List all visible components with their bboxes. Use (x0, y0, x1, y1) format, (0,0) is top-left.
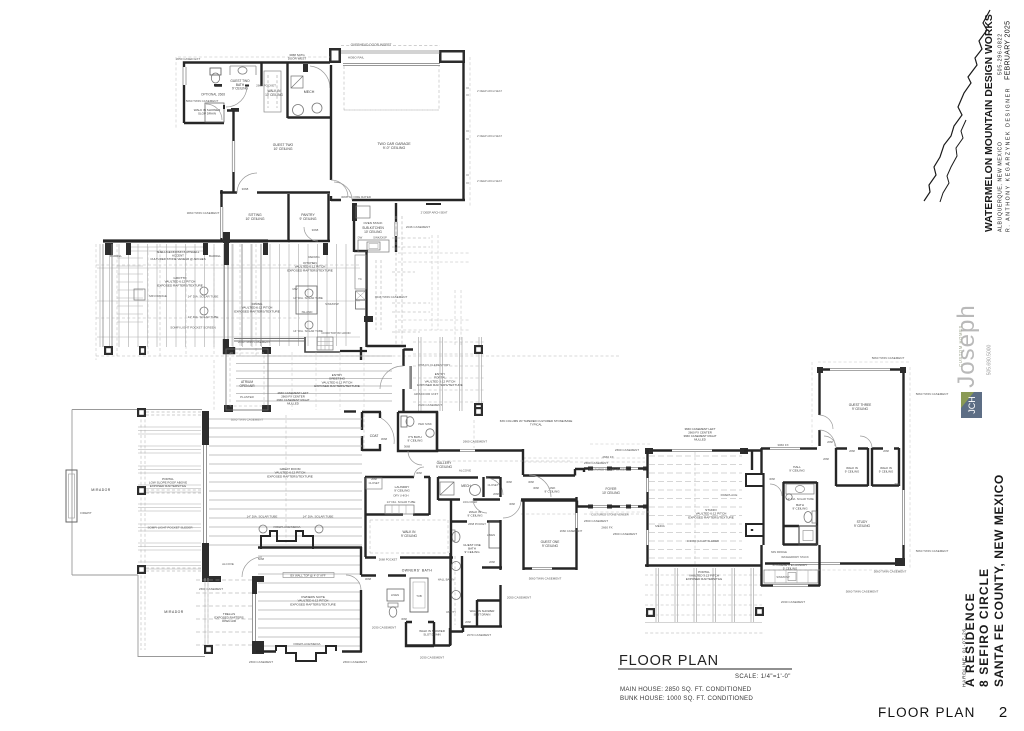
svg-text:9' CEILING: 9' CEILING (845, 470, 860, 474)
svg-text:FIREPLACE: FIREPLACE (721, 493, 738, 497)
svg-text:2070 CASEMENT: 2070 CASEMENT (467, 633, 491, 637)
svg-text:MIRADOR: MIRADOR (91, 488, 111, 492)
svg-text:2020 CASEMENT: 2020 CASEMENT (418, 403, 442, 407)
svg-text:CULTURED STONE VENEER: CULTURED STONE VENEER (589, 468, 627, 472)
svg-text:LINEN: LINEN (391, 593, 399, 597)
svg-text:2660 CASEMENT: 2660 CASEMENT (615, 448, 639, 452)
svg-text:2668: 2668 (465, 620, 471, 624)
svg-text:REFRIG: REFRIG (308, 255, 320, 259)
svg-text:HALL BASIN: HALL BASIN (438, 578, 455, 582)
svg-text:2668 POCKET: 2668 POCKET (468, 522, 486, 526)
svg-text:MIN FRIDGE: MIN FRIDGE (771, 550, 787, 554)
svg-text:9' CEILING: 9' CEILING (544, 490, 560, 494)
svg-text:EXPOSED RAFTERS/TEXTURE: EXPOSED RAFTERS/TEXTURE (157, 283, 203, 287)
svg-text:2660 CASEMENT: 2660 CASEMENT (249, 660, 273, 664)
svg-text:3060 FX: 3060 FX (777, 443, 788, 447)
svg-text:9' CEILING: 9' CEILING (789, 469, 805, 473)
svg-text:SOMFI LIGHT POCKET SLEDER: SOMFI LIGHT POCKET SLEDER (147, 526, 193, 530)
svg-text:9' CEILING: 9' CEILING (394, 489, 410, 493)
svg-text:2' DEEP ARCH SEAT: 2' DEEP ARCH SEAT (477, 134, 502, 138)
svg-text:EXPOSED RAFTERS/TEXTURE: EXPOSED RAFTERS/TEXTURE (290, 602, 336, 606)
svg-text:2050 CASED EXT: 2050 CASED EXT (176, 57, 201, 61)
svg-text:FIREPIT: FIREPIT (80, 511, 92, 515)
svg-text:2668: 2668 (894, 482, 900, 486)
svg-text:3068: 3068 (365, 577, 372, 581)
svg-text:9' CEILING: 9' CEILING (879, 470, 894, 474)
svg-text:EXPOSED RAFTERS/TEXTURE: EXPOSED RAFTERS/TEXTURE (314, 384, 360, 388)
svg-text:9'-0" CEILING: 9'-0" CEILING (383, 146, 406, 150)
svg-text:2668: 2668 (371, 477, 377, 481)
svg-text:EXPOSED RAFTERS/TEXTURE: EXPOSED RAFTERS/TEXTURE (688, 515, 734, 519)
svg-text:OVERHEAD DOOR INSERT: OVERHEAD DOOR INSERT (351, 43, 392, 47)
svg-text:2030 CASEMENT: 2030 CASEMENT (420, 656, 444, 660)
svg-text:MULLED: MULLED (287, 402, 299, 406)
svg-text:EXPOSED RAFTERS/T&G: EXPOSED RAFTERS/T&G (686, 577, 723, 581)
svg-text:BX WALL TOP @ 4'-0" AFF: BX WALL TOP @ 4'-0" AFF (290, 574, 326, 578)
svg-text:EXPOSED RAFTERS/TEXTURE: EXPOSED RAFTERS/TEXTURE (287, 268, 333, 272)
svg-text:2668 POCKET: 2668 POCKET (379, 558, 398, 562)
svg-text:10' CEILING: 10' CEILING (364, 230, 382, 234)
svg-text:3068: 3068 (401, 617, 407, 621)
svg-text:3666 FV CLERESTORY: 3666 FV CLERESTORY (418, 363, 450, 367)
svg-text:3-3060 | LIGHT SLEDER: 3-3060 | LIGHT SLEDER (687, 539, 719, 543)
svg-text:3068: 3068 (312, 228, 319, 232)
svg-text:BARREL: BARREL (209, 254, 221, 258)
svg-text:9' CEILING: 9' CEILING (401, 534, 418, 538)
svg-text:3668: 3668 (404, 445, 411, 449)
svg-text:BUNK HOUSE: 1000 SQ. FT. CONDI: BUNK HOUSE: 1000 SQ. FT. CONDITIONED (620, 695, 753, 702)
svg-text:TC: TC (358, 277, 362, 281)
svg-text:3068: 3068 (769, 477, 775, 481)
svg-text:PED SINK: PED SINK (418, 422, 432, 426)
svg-text:5068: 5068 (258, 557, 265, 561)
svg-text:CULTURED STONE VENEER @ ARCHES: CULTURED STONE VENEER @ ARCHES (150, 257, 205, 261)
svg-text:505.690.5000: 505.690.5000 (987, 344, 993, 375)
svg-text:9' CEILING: 9' CEILING (436, 465, 453, 469)
svg-text:14" DIA. SOLAR TUBE: 14" DIA. SOLAR TUBE (303, 515, 334, 519)
svg-text:2660 CASEMENT: 2660 CASEMENT (613, 532, 637, 536)
svg-text:3068: 3068 (509, 502, 515, 506)
svg-text:2668: 2668 (827, 440, 833, 444)
svg-text:VANITY: VANITY (446, 610, 456, 614)
svg-text:MEDIA: MEDIA (655, 524, 665, 528)
svg-text:3668: 3668 (381, 437, 388, 441)
svg-text:2660 CASEMENT: 2660 CASEMENT (463, 440, 487, 444)
svg-text:PLASTER: PLASTER (240, 395, 255, 399)
svg-text:505-296-0822: 505-296-0822 (998, 33, 1004, 75)
svg-text:EXPOSED RAFTERS/TEXTURE: EXPOSED RAFTERS/TEXTURE (267, 474, 313, 478)
svg-text:MW: MW (293, 287, 298, 291)
svg-text:3060 TWIN CASEMENT: 3060 TWIN CASEMENT (187, 211, 220, 215)
svg-text:FLOOR PLAN: FLOOR PLAN (619, 653, 719, 669)
svg-text:CLOSET: CLOSET (488, 483, 499, 487)
svg-text:4466 DOOR UNIT: 4466 DOOR UNIT (414, 392, 439, 396)
svg-text:2660 FX: 2660 FX (601, 526, 612, 530)
svg-text:5060 TWIN CASEMENT: 5060 TWIN CASEMENT (916, 549, 949, 553)
svg-text:9' CEILING: 9' CEILING (852, 407, 869, 411)
svg-text:COOKTOP W/ HOOD: COOKTOP W/ HOOD (321, 331, 351, 335)
svg-text:MECH: MECH (304, 90, 315, 94)
svg-text:10' CEILING: 10' CEILING (274, 147, 293, 151)
svg-text:SANTA FE COUNTY, NEW MEXICO: SANTA FE COUNTY, NEW MEXICO (992, 474, 1006, 687)
svg-text:10' CEILING: 10' CEILING (265, 93, 283, 97)
svg-text:HOBO RAIL: HOBO RAIL (348, 56, 365, 60)
svg-text:9' CEILING: 9' CEILING (854, 524, 871, 528)
svg-text:JCH: JCH (967, 396, 977, 414)
svg-text:14" DIA. SOLAR TUBE: 14" DIA. SOLAR TUBE (293, 329, 323, 333)
svg-text:MIRADOR: MIRADOR (164, 610, 184, 614)
svg-text:100G DRIER: 100G DRIER (463, 501, 478, 504)
svg-text:9' CEILING: 9' CEILING (299, 217, 316, 221)
svg-text:2660 CASEMENT: 2660 CASEMENT (199, 587, 223, 591)
svg-text:9' CEILING: 9' CEILING (467, 514, 483, 518)
svg-text:MAIN HOUSE: 2850 SQ. FT. CONDI: MAIN HOUSE: 2850 SQ. FT. CONDITIONED (620, 686, 752, 693)
svg-text:LINEN: LINEN (487, 533, 495, 537)
svg-text:5060 TWIN CASEMENT: 5060 TWIN CASEMENT (846, 590, 879, 594)
svg-text:3068: 3068 (416, 471, 422, 475)
svg-text:2668: 2668 (883, 449, 889, 453)
svg-text:OPEN AIR: OPEN AIR (222, 619, 237, 623)
svg-text:SLOP DRAIN: SLOP DRAIN (198, 112, 216, 116)
svg-text:10' CEILING: 10' CEILING (602, 491, 620, 495)
svg-text:SLOT DRAIN: SLOT DRAIN (474, 612, 491, 616)
svg-text:SCALE: 1/4"=1'-0": SCALE: 1/4"=1'-0" (735, 674, 791, 680)
svg-text:SINK/DISP: SINK/DISP (373, 236, 387, 240)
svg-text:2030 CASEMENT: 2030 CASEMENT (781, 600, 805, 604)
svg-text:9' CEILING: 9' CEILING (407, 439, 423, 443)
svg-text:2050 CASEMENT: 2050 CASEMENT (507, 596, 531, 600)
svg-text:SLOT DRAIN: SLOT DRAIN (423, 633, 440, 637)
svg-text:3068: 3068 (506, 480, 512, 484)
svg-text:DRY | HIGH: DRY | HIGH (393, 494, 408, 498)
svg-text:2046 CASEMENT: 2046 CASEMENT (406, 225, 430, 229)
svg-text:5060 TWIN CASEMENT: 5060 TWIN CASEMENT (916, 392, 949, 396)
svg-text:2668: 2668 (489, 560, 495, 564)
svg-text:SOMFI LIGHT POCKET SCREEN: SOMFI LIGHT POCKET SCREEN (170, 326, 216, 330)
svg-text:EXPOSED RAFTERS/T&G: EXPOSED RAFTERS/T&G (150, 484, 187, 488)
svg-text:2668 POCKET: 2668 POCKET (256, 84, 276, 88)
svg-text:9' CEILING: 9' CEILING (464, 550, 480, 554)
svg-text:FEBRUARY 2025: FEBRUARY 2025 (1005, 21, 1012, 80)
svg-text:5060 TWIN CASEMENT: 5060 TWIN CASEMENT (186, 99, 219, 103)
svg-text:3068: 3068 (528, 480, 534, 484)
svg-text:WATERMELON MOUNTAIN DESIGN WOR: WATERMELON MOUNTAIN DESIGN WORKS (984, 14, 995, 232)
svg-text:HARDLINE: 01-07-26: HARDLINE: 01-07-26 (962, 628, 968, 687)
svg-text:MIN FRIDGE: MIN FRIDGE (149, 294, 167, 298)
svg-text:3060 TWIN CASEMENT: 3060 TWIN CASEMENT (231, 418, 264, 422)
svg-text:2668: 2668 (493, 492, 499, 496)
svg-text:R. ANTHONY KEGARZYNEK DESIGNE: R. ANTHONY KEGARZYNEK DESIGNER (1006, 87, 1012, 232)
svg-text:8 SEFIRO CIRCLE: 8 SEFIRO CIRCLE (977, 568, 991, 687)
svg-text:COAT: COAT (370, 434, 379, 438)
svg-text:TYPICAL: TYPICAL (530, 423, 542, 427)
svg-text:SINK/DISP: SINK/DISP (325, 302, 339, 306)
svg-text:9' CEILING: 9' CEILING (232, 87, 249, 91)
svg-text:5060 TWIN CASEMENT: 5060 TWIN CASEMENT (529, 577, 562, 581)
svg-text:14" DIA. SOLAR TUBE: 14" DIA. SOLAR TUBE (247, 515, 278, 519)
svg-text:OPEN AIR: OPEN AIR (239, 384, 255, 388)
svg-text:CLOSET: CLOSET (369, 481, 380, 485)
svg-text:10' CEILING: 10' CEILING (246, 217, 265, 221)
svg-text:CUSTOM HOMES: CUSTOM HOMES (958, 325, 963, 367)
svg-text:ISLAND: ISLAND (302, 310, 314, 314)
svg-text:9' CEILING: 9' CEILING (792, 507, 808, 511)
svg-text:2660 CASEMENT: 2660 CASEMENT (343, 660, 367, 664)
svg-text:OPTIONAL 2668: OPTIONAL 2668 (201, 93, 225, 97)
svg-text:2668: 2668 (849, 449, 855, 453)
svg-text:2: 2 (999, 704, 1007, 721)
svg-text:14" DIA. SOLAR TUBE: 14" DIA. SOLAR TUBE (786, 497, 814, 501)
svg-text:2660 FX: 2660 FX (602, 455, 613, 459)
svg-text:FLOOR PLAN: FLOOR PLAN (878, 705, 976, 720)
svg-text:WASHER/DRY STACK: WASHER/DRY STACK (781, 555, 809, 559)
svg-text:3068 SC FIRE RATED: 3068 SC FIRE RATED (341, 195, 372, 199)
svg-text:TUB: TUB (416, 594, 422, 598)
svg-text:9' CEILING: 9' CEILING (542, 544, 559, 548)
svg-text:MULLED: MULLED (694, 438, 706, 442)
svg-text:2' DEEP ARCH SEAT: 2' DEEP ARCH SEAT (477, 179, 502, 183)
svg-text:FIREPLACE/MEDIA: FIREPLACE/MEDIA (293, 642, 320, 646)
svg-text:2' DEEP ARCH SEAT: 2' DEEP ARCH SEAT (421, 211, 448, 215)
svg-text:2' DEEP ARCH SEAT: 2' DEEP ARCH SEAT (477, 89, 502, 93)
svg-text:OVEN STACK: OVEN STACK (363, 221, 382, 225)
svg-text:2660 CASEMENT: 2660 CASEMENT (584, 461, 608, 465)
svg-text:OWNERS' BATH: OWNERS' BATH (402, 569, 433, 573)
svg-text:3046 TWIN CASEMENT: 3046 TWIN CASEMENT (375, 295, 408, 299)
svg-text:2668: 2668 (823, 457, 829, 461)
svg-text:ALCOVE: ALCOVE (459, 469, 471, 473)
svg-text:ALCOVE: ALCOVE (222, 562, 234, 566)
svg-text:2660 CASEMENT: 2660 CASEMENT (584, 519, 608, 523)
svg-text:2030 CASEMENT: 2030 CASEMENT (372, 626, 396, 630)
svg-text:FIREPLACE/MEDIA: FIREPLACE/MEDIA (273, 525, 300, 529)
svg-text:EXPOSED RAFTERS/TEXTURE: EXPOSED RAFTERS/TEXTURE (234, 309, 280, 313)
svg-text:3068: 3068 (242, 187, 249, 191)
svg-text:5060 TWIN CASEMENT: 5060 TWIN CASEMENT (872, 356, 905, 360)
svg-text:14" DIA. SOLAR TUBE: 14" DIA. SOLAR TUBE (293, 296, 323, 300)
svg-text:3068: 3068 (533, 486, 539, 490)
svg-text:CULTURED STONE VENEER: CULTURED STONE VENEER (591, 513, 629, 517)
svg-text:2660 CASEMENT: 2660 CASEMENT (560, 529, 583, 533)
svg-text:ALBUQUERQUE, NEW MEXICO: ALBUQUERQUE, NEW MEXICO (998, 142, 1004, 232)
svg-text:14" DIA. SOLAR TUBE: 14" DIA. SOLAR TUBE (387, 500, 416, 504)
svg-text:DW: DW (358, 236, 363, 240)
